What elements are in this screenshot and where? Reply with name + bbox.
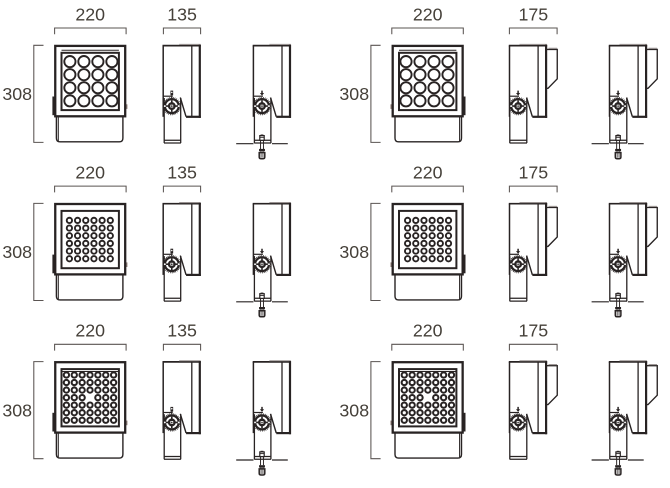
svg-text:220: 220 — [413, 162, 443, 182]
svg-text:308: 308 — [2, 84, 32, 104]
svg-text:220: 220 — [75, 162, 105, 182]
svg-text:220: 220 — [75, 321, 105, 341]
svg-text:220: 220 — [75, 4, 105, 24]
svg-text:175: 175 — [518, 162, 548, 182]
svg-text:308: 308 — [339, 84, 369, 104]
svg-text:220: 220 — [413, 4, 443, 24]
svg-text:308: 308 — [2, 400, 32, 420]
svg-text:308: 308 — [339, 242, 369, 262]
svg-text:175: 175 — [518, 321, 548, 341]
svg-text:135: 135 — [167, 162, 197, 182]
svg-text:135: 135 — [167, 321, 197, 341]
svg-text:308: 308 — [2, 242, 32, 262]
svg-text:308: 308 — [339, 400, 369, 420]
svg-text:135: 135 — [167, 4, 197, 24]
svg-text:220: 220 — [413, 321, 443, 341]
svg-text:175: 175 — [518, 4, 548, 24]
